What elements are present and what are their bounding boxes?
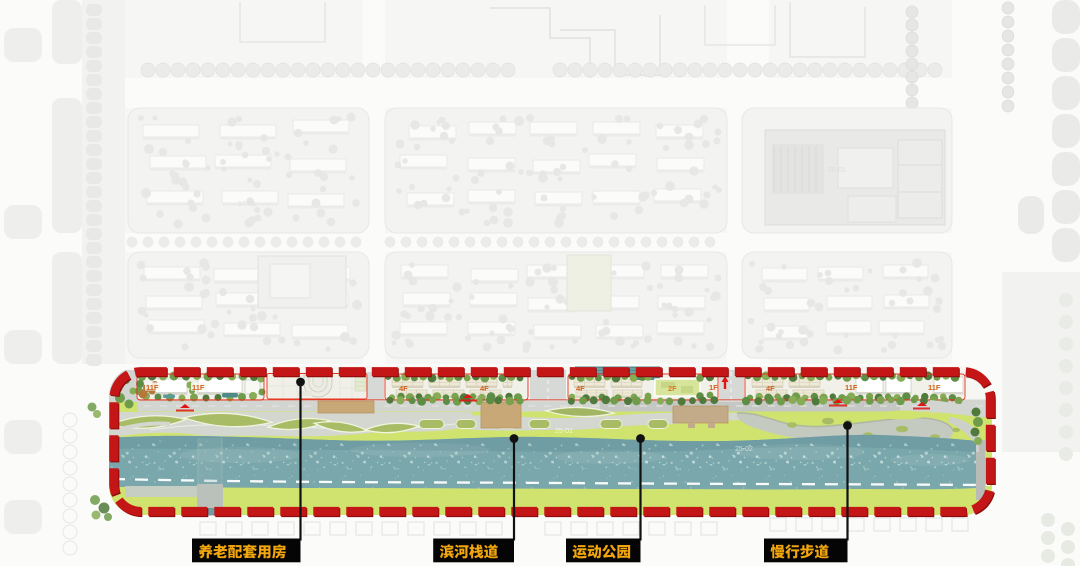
svg-text:20-01: 20-01 xyxy=(828,167,846,174)
svg-text:11F: 11F xyxy=(146,383,159,392)
svg-text:1F: 1F xyxy=(709,383,718,392)
svg-text:11F: 11F xyxy=(192,383,205,392)
svg-text:11F: 11F xyxy=(845,383,858,392)
svg-text:4F: 4F xyxy=(576,384,585,393)
svg-text:17-01: 17-01 xyxy=(238,201,256,208)
svg-text:2F: 2F xyxy=(668,384,677,393)
svg-text:4F: 4F xyxy=(480,384,489,393)
svg-text:4F: 4F xyxy=(399,384,408,393)
svg-text:11F: 11F xyxy=(928,383,941,392)
svg-text:4F: 4F xyxy=(766,384,775,393)
svg-text:25-01: 25-01 xyxy=(555,428,573,435)
